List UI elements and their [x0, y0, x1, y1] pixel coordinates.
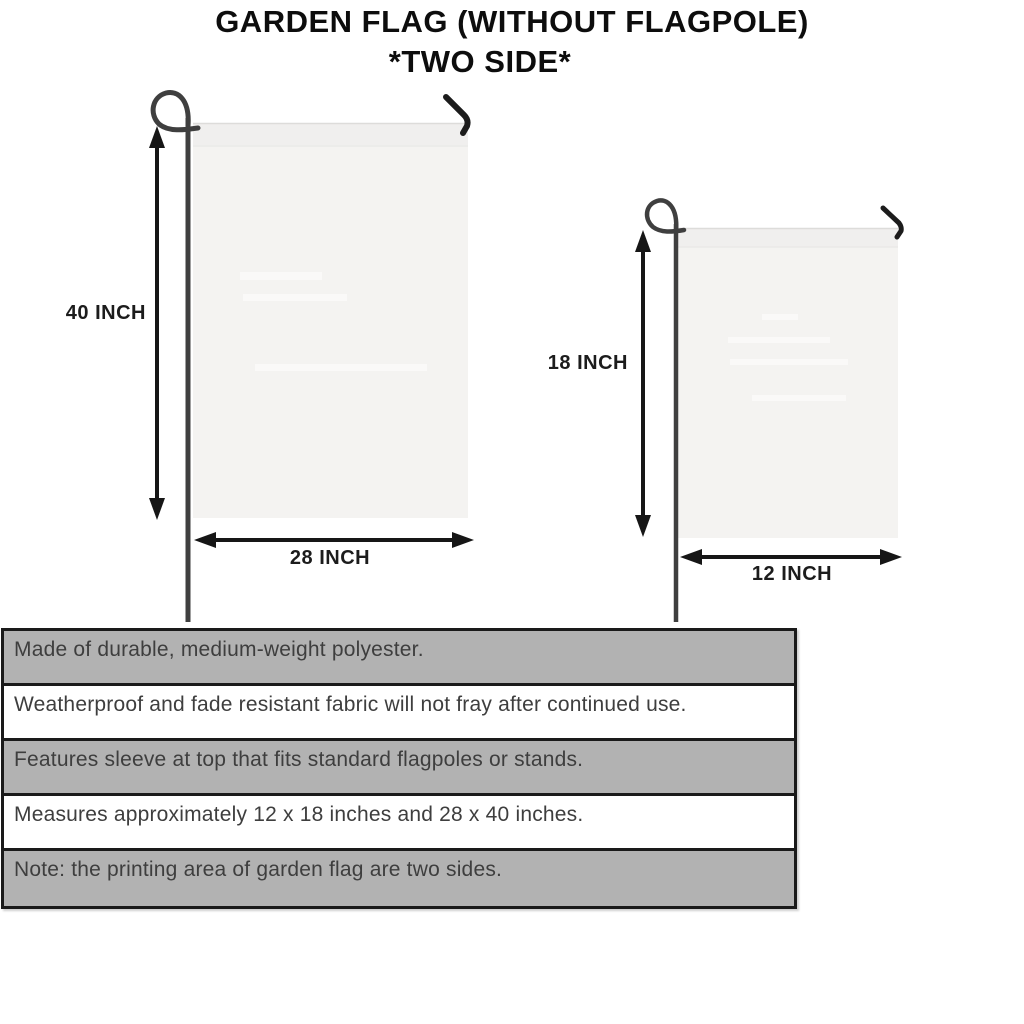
small-flag-group [635, 200, 902, 622]
large-flag-ghost-streak [255, 364, 427, 371]
feature-text: Measures approximately 12 x 18 inches an… [14, 803, 583, 826]
small-flag-ghost-streak [728, 337, 830, 343]
feature-row-measures: Measures approximately 12 x 18 inches an… [4, 796, 794, 851]
feature-row-weatherproof: Weatherproof and fade resistant fabric w… [4, 686, 794, 741]
small-flagpole-loop-icon [647, 200, 684, 231]
feature-text: Note: the printing area of garden flag a… [14, 858, 502, 881]
feature-text: Weatherproof and fade resistant fabric w… [14, 693, 687, 716]
large-flag-fabric [193, 123, 468, 518]
feature-text: Made of durable, medium-weight polyester… [14, 638, 424, 661]
small-flag-fabric [678, 228, 898, 538]
large-width-arrow [194, 532, 474, 548]
small-flag-ghost-streak [730, 359, 848, 365]
small-flag-sleeve [678, 228, 898, 247]
large-flag-group [149, 92, 474, 622]
feature-row-note: Note: the printing area of garden flag a… [4, 851, 794, 906]
product-info-image: GARDEN FLAG (WITHOUT FLAGPOLE) *TWO SIDE… [0, 0, 1024, 1024]
large-height-arrow [149, 126, 165, 520]
feature-text: Features sleeve at top that fits standar… [14, 748, 583, 771]
large-flag-sleeve [193, 123, 468, 145]
large-flag-ghost-streak [243, 294, 347, 301]
small-flag-width-label: 12 INCH [692, 564, 892, 584]
small-height-arrow [635, 230, 651, 537]
large-flag-ghost-streak [240, 272, 322, 280]
large-flag-height-label: 40 INCH [36, 303, 146, 323]
large-flagpole-loop-icon [153, 92, 198, 129]
small-flag-ghost-streak [762, 314, 798, 320]
feature-table: Made of durable, medium-weight polyester… [1, 628, 797, 909]
small-flag-ghost-streak [752, 395, 846, 401]
feature-row-material: Made of durable, medium-weight polyester… [4, 631, 794, 686]
large-flag-width-label: 28 INCH [230, 548, 430, 568]
small-flag-height-label: 18 INCH [520, 353, 628, 373]
feature-row-sleeve: Features sleeve at top that fits standar… [4, 741, 794, 796]
